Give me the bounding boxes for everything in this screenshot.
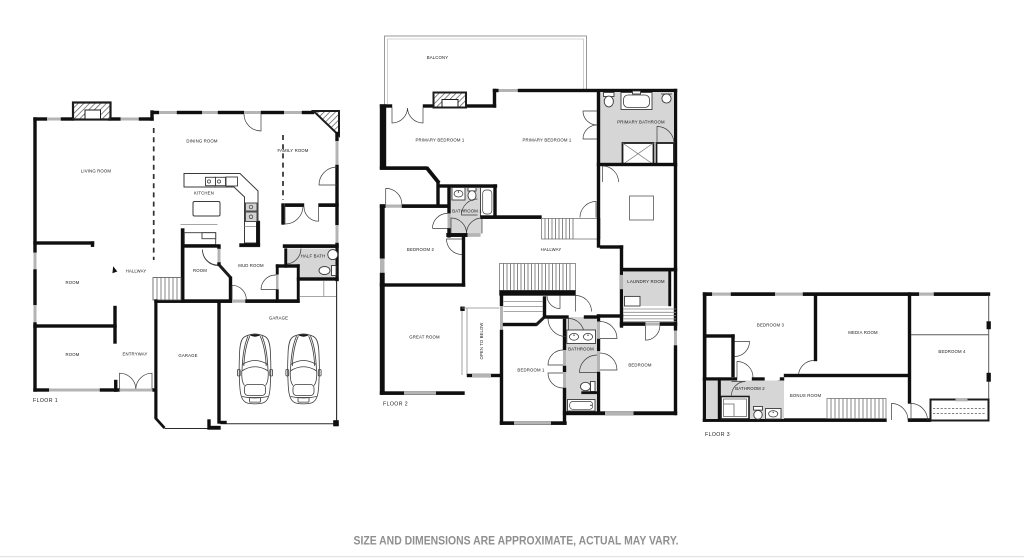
svg-text:GARAGE: GARAGE [269,316,288,321]
svg-text:BEDROOM 1: BEDROOM 1 [517,368,545,373]
svg-text:HALLWAY: HALLWAY [126,269,147,274]
svg-text:GREAT ROOM: GREAT ROOM [409,335,440,340]
svg-text:MUD ROOM: MUD ROOM [238,263,264,268]
svg-text:PRIMARY BATHROOM: PRIMARY BATHROOM [617,120,665,125]
svg-text:LIVING ROOM: LIVING ROOM [81,169,112,174]
svg-text:PRIMARY BEDROOM 1: PRIMARY BEDROOM 1 [523,138,572,143]
svg-text:BONUS ROOM: BONUS ROOM [790,393,822,398]
svg-text:FAMILY ROOM: FAMILY ROOM [277,148,308,153]
svg-text:FLOOR 1: FLOOR 1 [33,398,58,404]
svg-text:BATHROOM: BATHROOM [568,347,594,352]
svg-text:BEDROOM: BEDROOM [628,363,652,368]
svg-text:KITCHEN: KITCHEN [194,191,214,196]
svg-text:ROOM: ROOM [66,280,80,285]
svg-text:BEDROOM 2: BEDROOM 2 [407,247,435,252]
svg-text:BALCONY: BALCONY [427,55,449,60]
svg-text:FLOOR 3: FLOOR 3 [705,432,730,438]
svg-text:BEDROOM 4: BEDROOM 4 [938,349,966,354]
svg-text:OPEN TO BELOW: OPEN TO BELOW [479,323,484,360]
svg-text:BATHROOM 2: BATHROOM 2 [735,386,765,391]
svg-text:GARAGE: GARAGE [178,353,197,358]
svg-text:LAUNDRY ROOM: LAUNDRY ROOM [627,279,665,284]
svg-text:MEDIA ROOM: MEDIA ROOM [848,330,878,335]
svg-text:ROOM: ROOM [193,268,207,273]
svg-text:ROOM: ROOM [66,352,80,357]
svg-text:BATHROOM 1: BATHROOM 1 [452,208,482,213]
svg-text:DINING ROOM: DINING ROOM [186,139,218,144]
svg-text:HALLWAY: HALLWAY [541,247,562,252]
svg-text:ENTRYWAY: ENTRYWAY [123,352,148,357]
svg-text:SIZE AND DIMENSIONS ARE APPROX: SIZE AND DIMENSIONS ARE APPROXIMATE, ACT… [354,534,679,548]
svg-text:BEDROOM 3: BEDROOM 3 [757,323,785,328]
svg-text:FLOOR 2: FLOOR 2 [383,402,408,408]
svg-text:HALF BATH: HALF BATH [301,254,326,259]
svg-text:PRIMARY BEDROOM 1: PRIMARY BEDROOM 1 [416,138,465,143]
